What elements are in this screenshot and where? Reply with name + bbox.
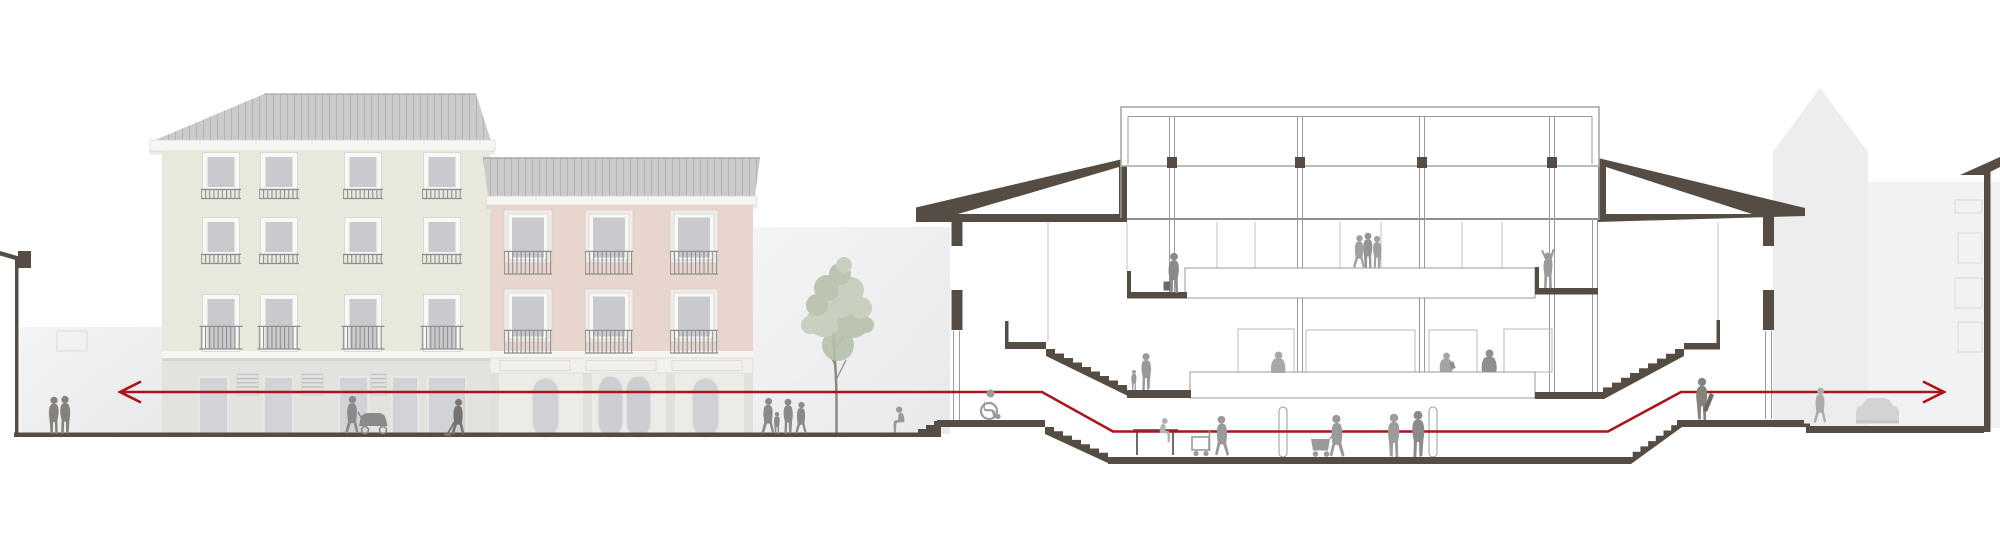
right-landing-floor [1677,420,1798,427]
pilaster [490,373,499,437]
arched-showcase [626,376,651,437]
shop-door [199,377,228,434]
arched-showcase [598,376,623,437]
drawing-svg [0,0,2000,535]
window [259,153,299,199]
left-wall-section [952,219,963,420]
stair-down-left [1045,427,1110,464]
architectural-drawing [0,0,2000,535]
person-small-middle-tier [1482,350,1497,372]
window [343,218,383,264]
street-right [1806,426,1984,433]
upper-left-landing [1127,292,1187,299]
string-course [162,351,490,358]
hall-floor [1108,457,1625,464]
person-with-trolley [1192,416,1229,456]
pink-shopfront [490,358,753,437]
person-with-shopping-cart [1311,415,1345,457]
window-balcony [585,289,633,353]
person-seated-reader [1440,353,1456,372]
window [201,153,241,199]
neighbour-eave [1960,157,2000,175]
pilaster [744,373,753,437]
person-two-talking [1388,411,1424,457]
shop-door [392,377,418,434]
person-arms-raised [1541,249,1554,288]
right-wall-section [1763,214,1774,419]
clerestory [1121,107,1599,218]
upper-tier-plinth [1185,268,1535,298]
person-middle-tier [1271,352,1285,373]
window-balcony [670,210,718,274]
person-right-landing [1696,378,1714,420]
pink-cornice [486,196,757,205]
window-balcony [670,289,718,353]
backdrop-tower [1773,88,1868,428]
pink-building [483,158,760,437]
window [259,218,299,264]
window [422,218,462,264]
pink-windows-row1 [504,210,718,274]
lamp-pole [15,258,19,434]
pilaster [666,373,675,437]
green-building [150,94,495,434]
neighbour-wall [1984,168,1991,432]
person-group-upper-tier [1353,233,1381,268]
pink-windows-row2 [504,289,718,353]
roof-wedge-left [916,158,1127,222]
arched-door [532,378,559,437]
person-mother-and-child [1131,353,1151,390]
window-balcony [585,210,633,274]
window [201,218,241,264]
window-balcony [258,295,301,352]
lamp-head [18,251,31,268]
stair-up-right [1625,420,1682,464]
middle-left-landing [1127,390,1191,398]
middle-tier-plinth [1190,372,1535,398]
window-balcony [504,289,552,353]
pilaster [583,373,592,437]
upper-tier [1127,267,1598,299]
pram [359,413,388,426]
arched-door [692,378,719,437]
lamp-arm [0,251,19,261]
window-balcony [200,295,243,352]
shop-door [264,377,293,434]
clerestory-box [1121,107,1599,166]
person-wheelchair-user [981,390,1001,420]
green-cornice [150,140,495,151]
middle-tier [1127,372,1603,399]
window [422,153,462,199]
upper-right-landing [1535,288,1598,295]
window-balcony [504,210,552,274]
person-with-briefcase [1164,253,1179,293]
window-balcony [342,295,385,352]
middle-right-landing [1535,392,1603,399]
green-shopfront [162,358,490,434]
section-building [916,107,1805,457]
window-balcony [421,295,464,352]
roof-datum-line [1127,218,1600,220]
street-left [14,433,941,438]
entry-platform [937,420,1045,427]
window [343,153,383,199]
stair-upper-left [1005,321,1130,397]
